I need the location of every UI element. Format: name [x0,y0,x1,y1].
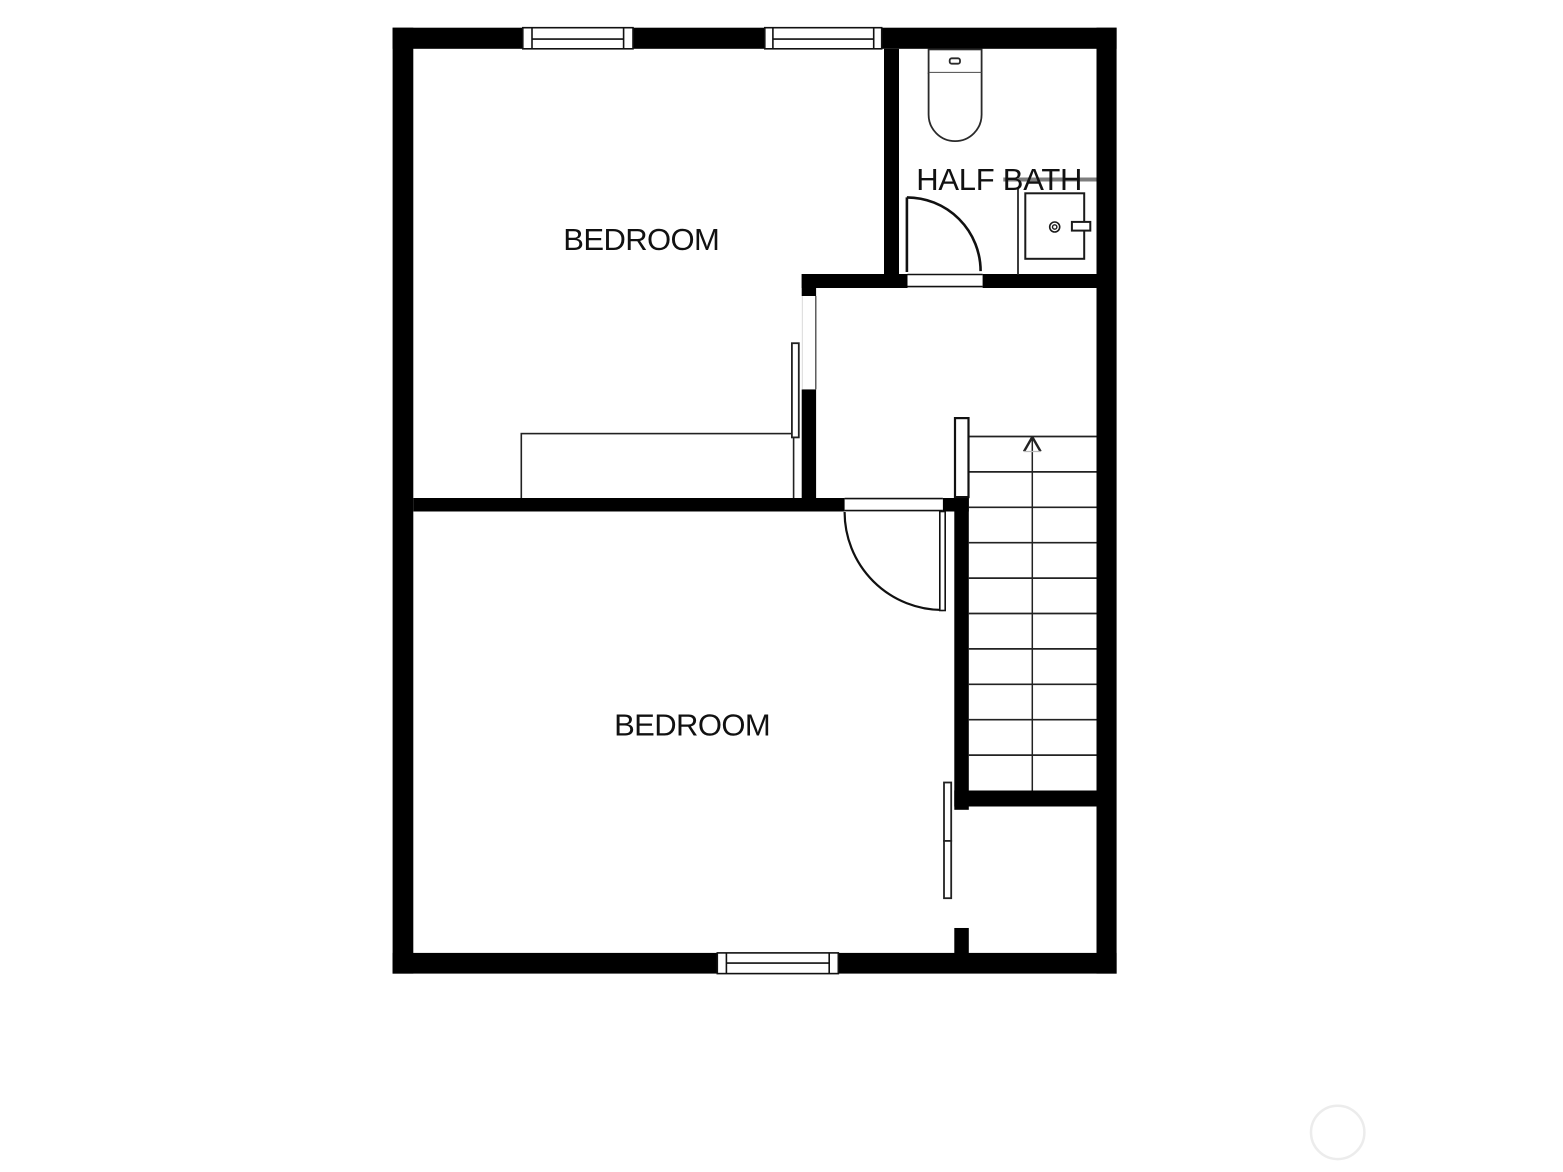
svg-text:HALF BATH: HALF BATH [916,162,1082,197]
svg-text:BEDROOM: BEDROOM [614,708,770,743]
svg-text:BEDROOM: BEDROOM [563,222,719,257]
